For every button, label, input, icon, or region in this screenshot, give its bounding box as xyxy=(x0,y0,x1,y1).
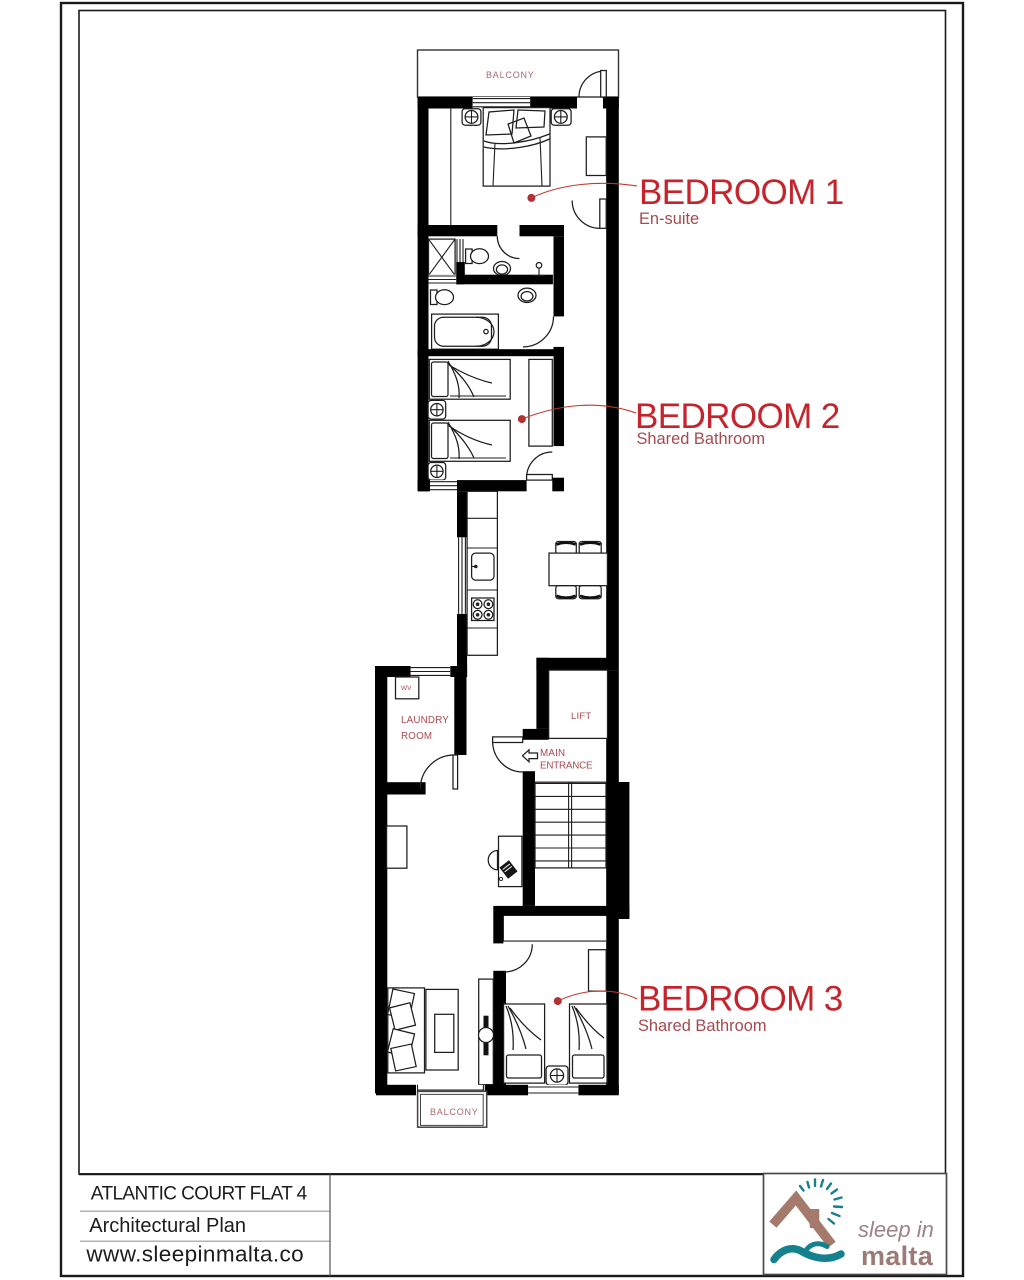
svg-text:MAIN: MAIN xyxy=(540,748,565,759)
svg-text:ATLANTIC COURT FLAT 4: ATLANTIC COURT FLAT 4 xyxy=(91,1184,308,1205)
svg-text:ENTRANCE: ENTRANCE xyxy=(540,761,593,772)
svg-text:www.sleepinmalta.co: www.sleepinmalta.co xyxy=(85,1242,304,1267)
svg-text:malta: malta xyxy=(861,1241,934,1271)
svg-text:En-suite: En-suite xyxy=(639,210,699,228)
svg-text:BALCONY: BALCONY xyxy=(430,1107,479,1117)
svg-text:Shared Bathroom: Shared Bathroom xyxy=(638,1017,766,1035)
svg-text:WV: WV xyxy=(401,685,412,692)
svg-text:ROOM: ROOM xyxy=(401,731,432,742)
svg-text:BALCONY: BALCONY xyxy=(486,70,535,80)
svg-text:LIFT: LIFT xyxy=(571,711,591,722)
svg-text:BEDROOM 3: BEDROOM 3 xyxy=(638,980,843,1019)
svg-text:Architectural Plan: Architectural Plan xyxy=(89,1215,246,1237)
svg-text:LAUNDRY: LAUNDRY xyxy=(401,715,449,726)
svg-text:BEDROOM 1: BEDROOM 1 xyxy=(639,173,844,212)
svg-text:sleep in: sleep in xyxy=(858,1217,934,1242)
svg-text:Shared Bathroom: Shared Bathroom xyxy=(637,430,765,448)
